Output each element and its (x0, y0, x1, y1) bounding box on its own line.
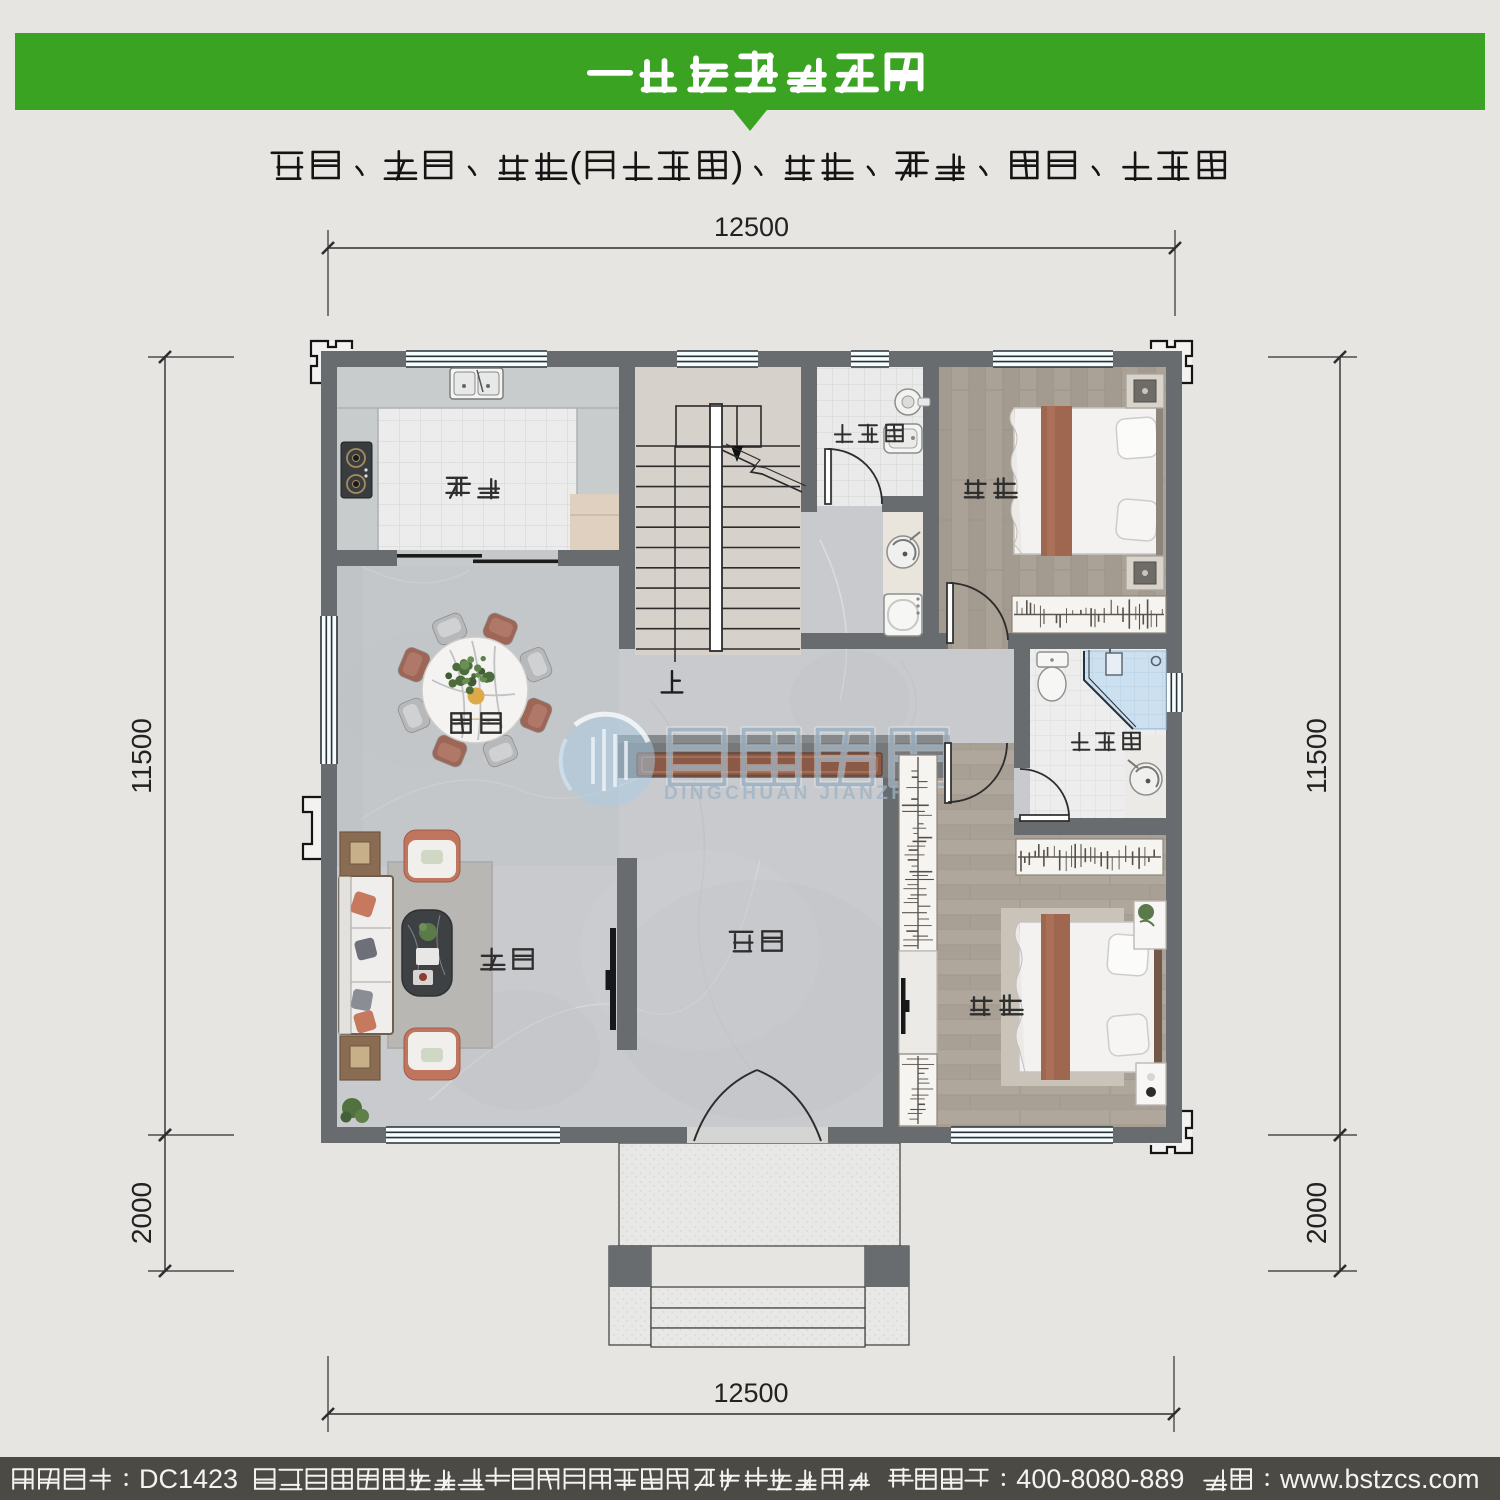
svg-text:(: ( (569, 144, 581, 185)
svg-text:2000: 2000 (126, 1182, 157, 1244)
svg-text:12500: 12500 (714, 212, 789, 242)
svg-text:11500: 11500 (1301, 718, 1332, 794)
svg-text:2000: 2000 (1301, 1182, 1332, 1244)
svg-text:www.bstzcs.com: www.bstzcs.com (1279, 1464, 1480, 1494)
svg-text:DC1423: DC1423 (139, 1464, 238, 1494)
svg-text:): ) (731, 144, 743, 185)
svg-text:11500: 11500 (126, 718, 157, 794)
svg-text:12500: 12500 (713, 1378, 788, 1408)
svg-text:400-8080-889: 400-8080-889 (1016, 1464, 1184, 1494)
svg-text:DINGCHUAN JIANZHU: DINGCHUAN JIANZHU (664, 783, 926, 804)
